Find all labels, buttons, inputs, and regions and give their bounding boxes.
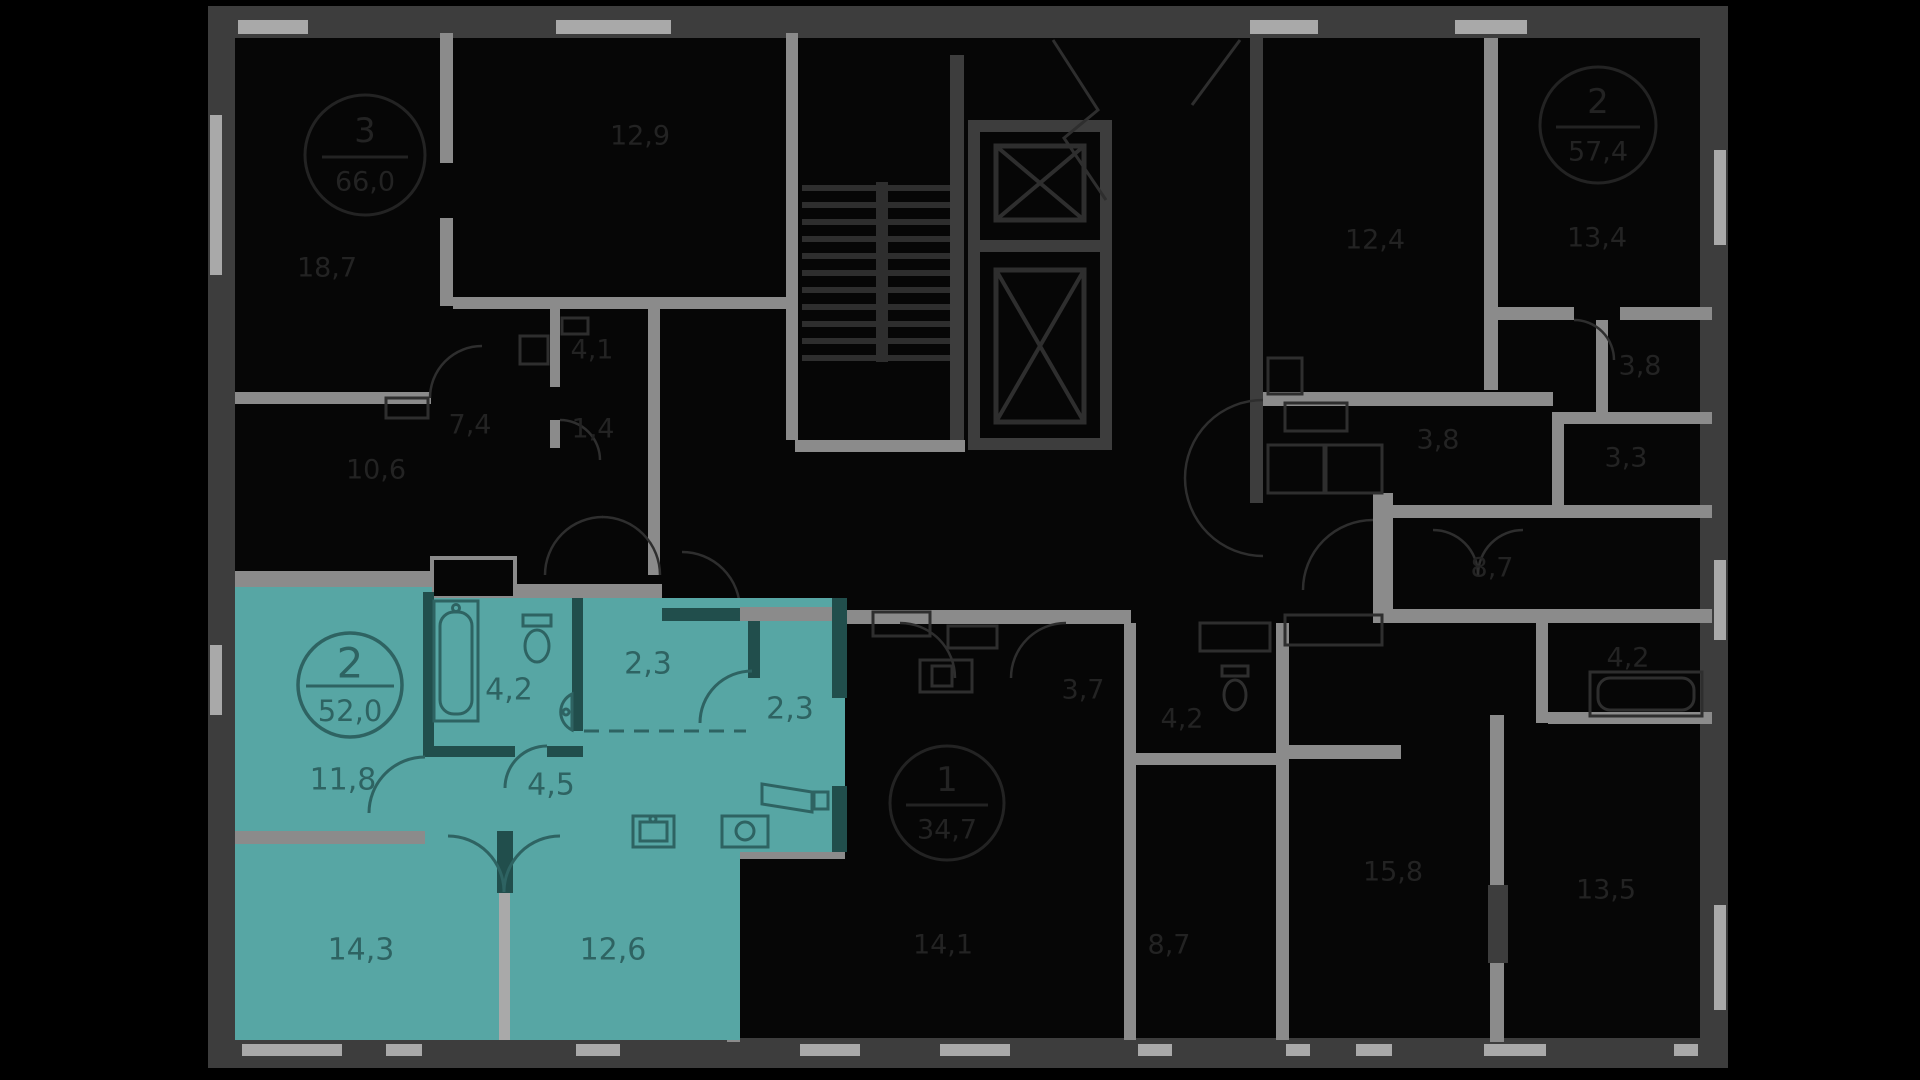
room-area-label: 18,7 <box>297 253 357 284</box>
room-area-label: 3,8 <box>1417 425 1460 456</box>
room-area-label: 4,5 <box>527 768 575 803</box>
room-area-label: 14,1 <box>913 930 973 961</box>
room-area-label: 3,3 <box>1605 443 1648 474</box>
badge-area: 34,7 <box>917 815 977 846</box>
badge-area: 52,0 <box>318 694 383 728</box>
badge-rooms: 2 <box>1587 82 1609 122</box>
room-area-label: 2,3 <box>624 647 672 682</box>
room-area-label: 4,1 <box>571 335 614 366</box>
room-area-label: 4,2 <box>1161 704 1204 735</box>
room-area-label: 2,3 <box>766 692 814 727</box>
room-area-label: 8,7 <box>1471 553 1514 584</box>
badge-area: 66,0 <box>335 167 395 198</box>
room-area-label: 10,6 <box>346 455 406 486</box>
badge-rooms: 1 <box>936 760 958 800</box>
vent-shaft <box>432 558 515 598</box>
selected-apartment-badge: 2 52,0 <box>298 633 402 737</box>
room-area-label: 11,8 <box>310 763 377 798</box>
badge-rooms: 3 <box>354 111 376 151</box>
room-area-label: 8,7 <box>1148 930 1191 961</box>
room-area-label: 4,2 <box>485 673 533 708</box>
badge-area: 57,4 <box>1568 137 1628 168</box>
room-area-label: 13,5 <box>1576 875 1636 906</box>
room-area-label: 15,8 <box>1363 857 1423 888</box>
room-area-label: 3,7 <box>1062 675 1105 706</box>
room-area-label: 4,2 <box>1607 643 1650 674</box>
badge-rooms: 2 <box>337 639 364 688</box>
room-area-label: 14,3 <box>328 933 395 968</box>
room-area-label: 12,9 <box>610 121 670 152</box>
floor-plan-canvas: 3 66,0 18,7 12,9 10,6 7,4 4,1 1,4 2 57,4… <box>0 0 1920 1080</box>
room-area-label: 7,4 <box>449 410 492 441</box>
room-area-label: 12,4 <box>1345 225 1405 256</box>
room-area-label: 13,4 <box>1567 223 1627 254</box>
room-area-label: 1,4 <box>572 414 615 445</box>
room-area-label: 12,6 <box>580 933 647 968</box>
room-area-label: 3,8 <box>1619 351 1662 382</box>
